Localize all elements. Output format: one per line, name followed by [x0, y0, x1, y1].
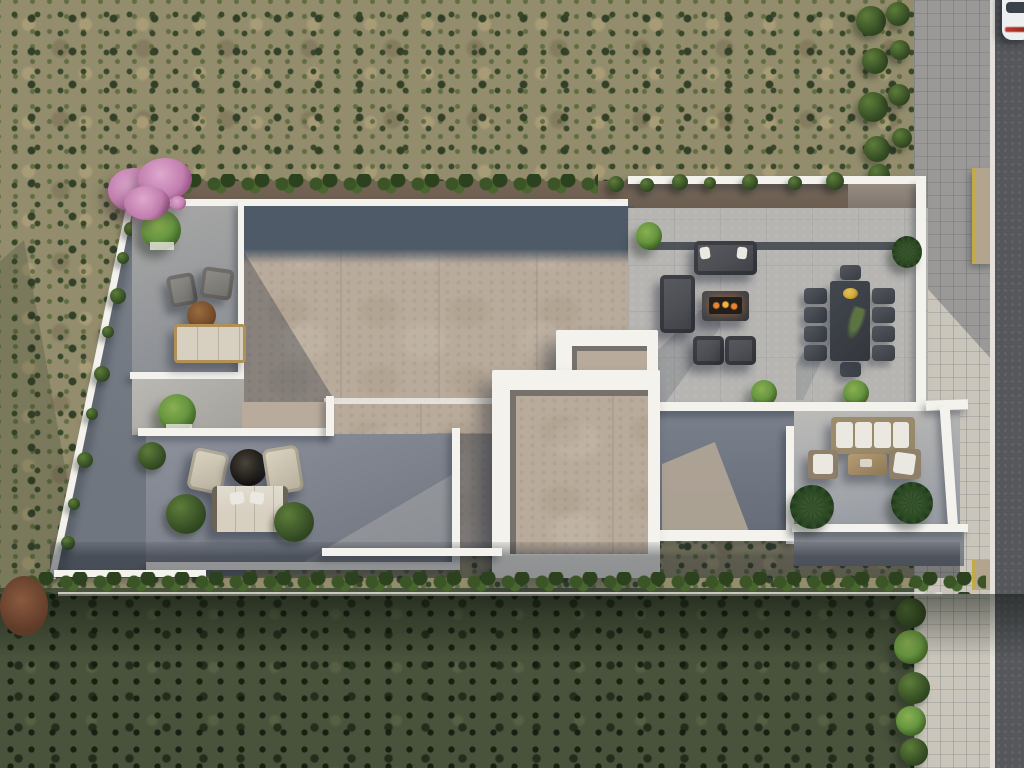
roof-b-bottom-wall — [322, 548, 502, 556]
dining-chair — [840, 265, 861, 280]
patio-wall-bottom — [656, 530, 798, 541]
roadside-bush — [864, 136, 890, 162]
dining-chair — [872, 307, 895, 323]
gold-bowl-centerpiece — [843, 288, 858, 299]
sofa-cushion — [855, 422, 872, 448]
top-hedge-row — [172, 174, 598, 194]
dining-chair — [840, 362, 861, 377]
palm-planter — [790, 485, 834, 529]
wall-shrub — [102, 326, 114, 338]
hedge-bush — [640, 178, 654, 192]
pink-blossom-tree — [124, 186, 170, 220]
sofa-cushion — [874, 422, 891, 448]
hedge-bush — [704, 177, 716, 189]
sofa-cushion — [836, 422, 853, 448]
sofa-cushion — [893, 422, 909, 448]
gray-armchair — [199, 266, 235, 301]
terrace-step-wall — [130, 372, 246, 379]
roadside-bush — [898, 672, 930, 704]
wall-shrub — [110, 288, 126, 304]
linear-skylight-strip — [648, 242, 904, 250]
car-windshield — [1006, 2, 1024, 13]
dining-chair — [804, 345, 827, 361]
bottom-hedge-row — [24, 572, 986, 594]
dining-chair — [872, 345, 895, 361]
terrace-shrub — [138, 442, 166, 470]
lounge-armchair — [693, 336, 724, 365]
throw-pillow — [736, 247, 747, 260]
sofa-pillow — [249, 491, 265, 505]
roadside-tree — [896, 706, 926, 736]
right-parapet-wall — [916, 180, 926, 412]
dining-chair — [804, 307, 827, 323]
palm-planter — [891, 482, 933, 524]
armchair-cushion — [813, 454, 833, 474]
hedge-bush — [826, 172, 844, 190]
terrace-plant — [636, 222, 662, 250]
armchair-cushion — [893, 452, 917, 476]
dining-chair — [804, 288, 827, 304]
roof-curb — [324, 398, 500, 404]
roadside-bush — [856, 6, 886, 36]
two-seat-sofa — [660, 275, 695, 333]
roadside-bush — [862, 48, 888, 74]
table-tray — [860, 459, 872, 467]
roof-slate-band — [244, 206, 634, 264]
fire-flames — [709, 297, 742, 314]
roadside-bush — [888, 84, 910, 106]
blossom-tuft — [170, 196, 186, 210]
roadside-bush — [858, 92, 888, 122]
south-outer-shadow — [0, 594, 1024, 658]
hedge-bush — [608, 176, 624, 192]
wall-shrub — [117, 252, 129, 264]
wall-shrub — [77, 452, 93, 468]
terrace-shrub — [166, 494, 206, 534]
terrace-plant — [892, 236, 922, 268]
wall-shrub — [94, 366, 110, 382]
roadside-bush — [886, 2, 910, 26]
terrace-shrub — [274, 502, 314, 542]
skylight-floor — [510, 390, 648, 554]
roadside-bush — [890, 40, 910, 60]
hedge-bush — [788, 176, 802, 190]
wall-shrub — [68, 498, 80, 510]
lower-left-wall-step — [326, 396, 334, 436]
terrace-dividing-wall — [628, 402, 930, 411]
hedge-bush — [742, 174, 758, 190]
wall-shrub — [86, 408, 98, 420]
dining-chair — [872, 288, 895, 304]
car-taillights — [1005, 27, 1024, 32]
aerial-villa-render — [0, 0, 1024, 768]
dining-chair — [804, 326, 827, 342]
lower-left-wall-top — [138, 428, 334, 436]
roadside-bush — [900, 738, 928, 766]
dining-chair — [872, 326, 895, 342]
hedge-bush — [672, 174, 688, 190]
beige-outdoor-sofa — [174, 324, 246, 363]
lounge-armchair — [725, 336, 756, 365]
sofa-pillow — [229, 491, 245, 505]
rust-colored-bush — [0, 576, 48, 636]
throw-pillow — [699, 246, 711, 259]
tree-planter — [150, 242, 174, 250]
round-fire-bowl — [230, 449, 267, 486]
roadside-bush — [892, 128, 912, 148]
